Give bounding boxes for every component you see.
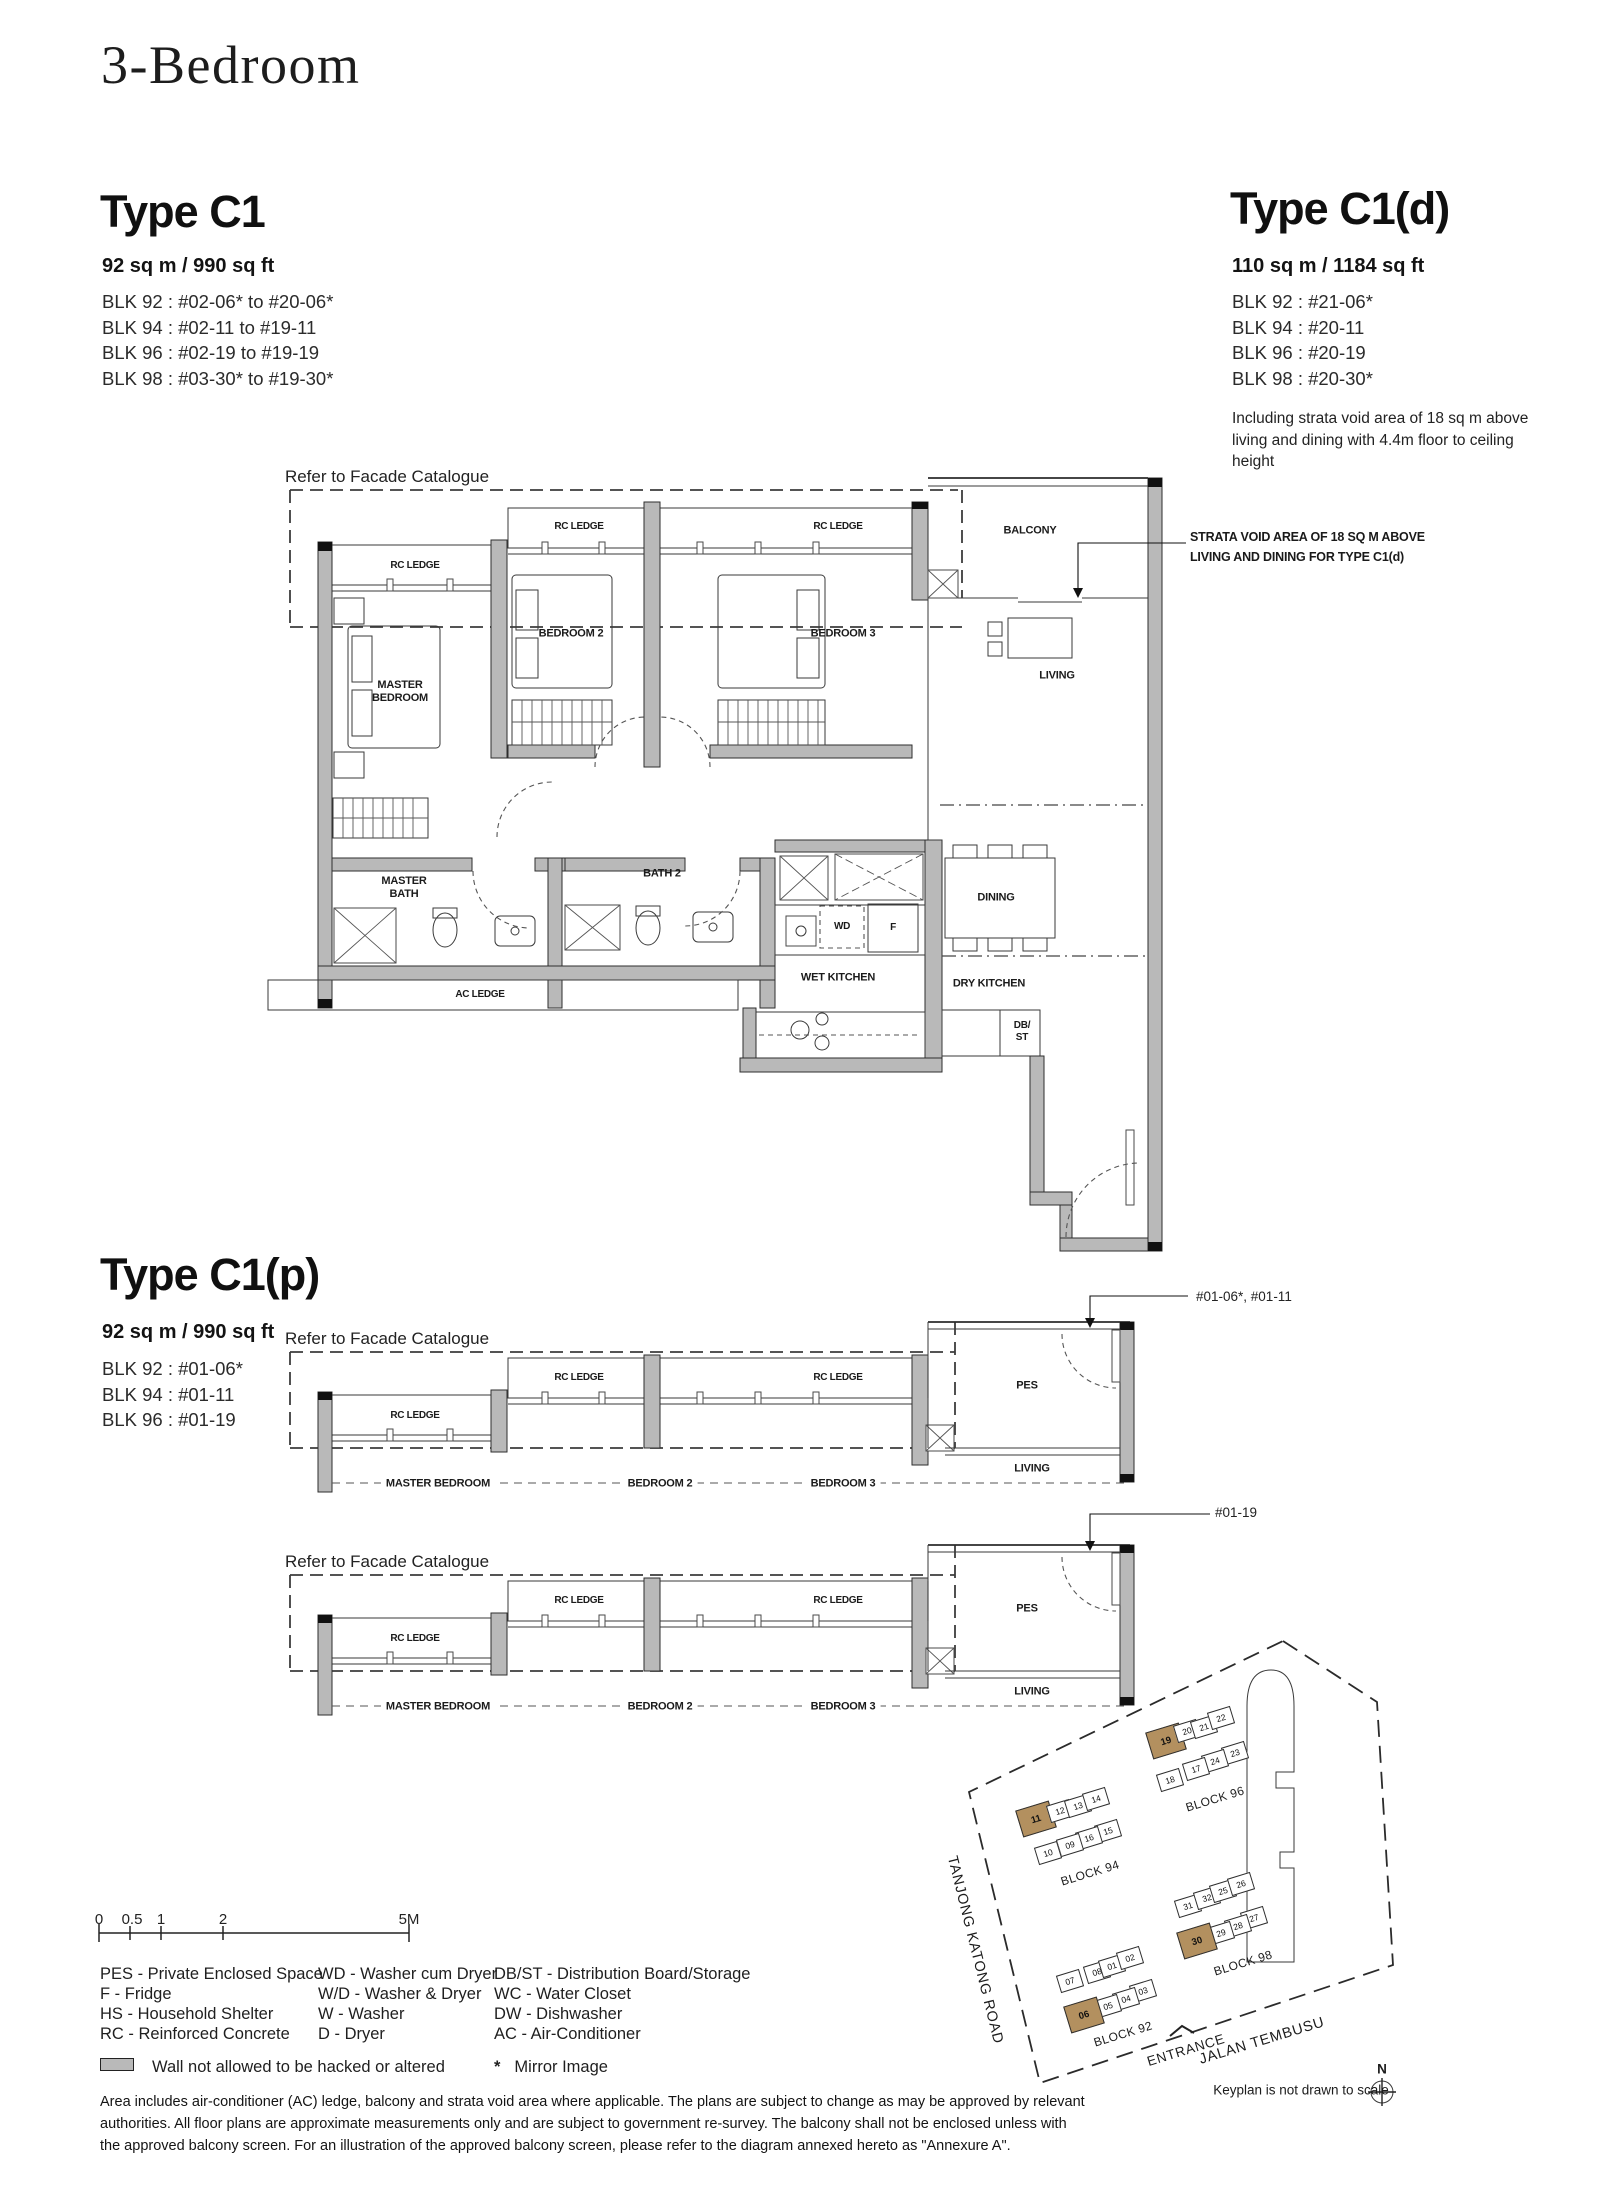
rc-ledge-label: RC LEDGE [813, 521, 862, 533]
scale-tick-label: 0 [95, 1911, 103, 1928]
scale-tick-label: 5M [399, 1911, 420, 1928]
living-label: LIVING [1014, 1462, 1049, 1475]
blk-line: BLK 96 : #02-19 to #19-19 [102, 340, 333, 366]
legend-item: W/D - Washer & Dryer [318, 1984, 497, 2004]
legend-item: DB/ST - Distribution Board/Storage [494, 1964, 750, 1984]
type-c1-area: 92 sq m / 990 sq ft [102, 256, 274, 276]
bath2-label: BATH 2 [643, 867, 681, 880]
wd-label: WD [834, 921, 850, 933]
facade-note: Refer to Facade Catalogue [285, 1329, 489, 1349]
blk-line: BLK 92 : #21-06* [1232, 289, 1373, 315]
dining-label: DINING [977, 891, 1014, 904]
blk-line: BLK 92 : #01-06* [102, 1356, 243, 1382]
window-ticks [387, 542, 819, 591]
pes-door-arc [1062, 1334, 1116, 1388]
blk-line: BLK 96 : #20-19 [1232, 340, 1373, 366]
blk-line: BLK 92 : #02-06* to #20-06* [102, 289, 333, 315]
master-bedroom-label: MASTER BEDROOM [381, 1700, 495, 1713]
plan-c1p-1 [290, 1296, 1188, 1492]
keyplan-note: Keyplan is not drawn to scale [1213, 2083, 1389, 2098]
rc-ledge-label: RC LEDGE [813, 1372, 862, 1384]
north-label: N [1377, 2062, 1387, 2077]
disclaimer-line: Area includes air-conditioner (AC) ledge… [100, 2094, 1085, 2110]
unit-annotation: #01-06*, #01-11 [1196, 1289, 1292, 1304]
wall-swatch [100, 2058, 134, 2071]
type-c1d-blocks: BLK 92 : #21-06* BLK 94 : #20-11 BLK 96 … [1232, 289, 1373, 391]
wardrobes [333, 700, 825, 838]
legend-item: DW - Dishwasher [494, 2004, 750, 2024]
bedroom3-label: BEDROOM 3 [811, 627, 876, 640]
bedroom2-label: BEDROOM 2 [623, 1477, 698, 1490]
keyplan-linework [969, 1641, 1396, 2106]
bedroom3-label: BEDROOM 3 [806, 1700, 881, 1713]
legend-item: HS - Household Shelter [100, 2004, 323, 2024]
legend-item: D - Dryer [318, 2024, 497, 2044]
pes-door-arc [1062, 1557, 1116, 1611]
living-label: LIVING [1039, 669, 1074, 682]
scale-tick-label: 0.5 [122, 1911, 143, 1928]
strata-leader [1073, 543, 1186, 598]
wall-note: Wall not allowed to be hacked or altered [152, 2058, 445, 2077]
plan-c1p-2 [290, 1514, 1210, 1715]
blk-line: BLK 94 : #01-11 [102, 1382, 243, 1408]
blk-line: BLK 94 : #02-11 to #19-11 [102, 315, 333, 341]
legend-item: WC - Water Closet [494, 1984, 750, 2004]
type-c1p-heading: Type C1(p) [100, 1252, 319, 1297]
blk-line: BLK 96 : #01-19 [102, 1407, 243, 1433]
fridge-label: F [890, 922, 896, 934]
pes-label: PES [1016, 1379, 1037, 1392]
legend-item: PES - Private Enclosed Space [100, 1964, 323, 1984]
facade-note: Refer to Facade Catalogue [285, 1552, 489, 1572]
type-c1-heading: Type C1 [100, 189, 265, 234]
rc-ledge-label: RC LEDGE [390, 1633, 439, 1645]
legend-col2: WD - Washer cum Dryer W/D - Washer & Dry… [318, 1964, 497, 2044]
dry-kitchen-label: DRY KITCHEN [953, 977, 1025, 990]
legend-item: W - Washer [318, 2004, 497, 2024]
pes-label: PES [1016, 1602, 1037, 1615]
rc-ledge-label: RC LEDGE [390, 560, 439, 572]
disclaimer-line: the approved balcony screen. For an illu… [100, 2138, 1011, 2154]
ac-ledge-label: AC LEDGE [455, 989, 504, 1001]
plan-c1 [268, 478, 1186, 1251]
rc-ledge-label: RC LEDGE [554, 1372, 603, 1384]
floorplan-sheet: 3-Bedroom Type C1 92 sq m / 990 sq ft BL… [0, 0, 1600, 2202]
scale-tick-label: 2 [219, 1911, 227, 1928]
page-title: 3-Bedroom [101, 36, 360, 95]
mirror-text: Mirror Image [514, 2058, 608, 2076]
master-bedroom-label: MASTER BEDROOM [360, 679, 440, 705]
type-c1d-strata-note: Including strata void area of 18 sq m ab… [1232, 408, 1532, 473]
unit-annotation: #01-19 [1215, 1505, 1257, 1520]
rc-ledge-label: RC LEDGE [554, 521, 603, 533]
legend-col1: PES - Private Enclosed Space F - Fridge … [100, 1964, 323, 2044]
rc-ledge-label: RC LEDGE [813, 1595, 862, 1607]
legend-item: RC - Reinforced Concrete [100, 2024, 323, 2044]
legend-item: WD - Washer cum Dryer [318, 1964, 497, 1984]
balcony-label: BALCONY [1004, 524, 1057, 537]
bedroom2-label: BEDROOM 2 [539, 627, 604, 640]
type-c1p-blocks: BLK 92 : #01-06* BLK 94 : #01-11 BLK 96 … [102, 1356, 243, 1433]
facade-note: Refer to Facade Catalogue [285, 467, 489, 487]
blk-line: BLK 98 : #03-30* to #19-30* [102, 366, 333, 392]
legend-item: AC - Air-Conditioner [494, 2024, 750, 2044]
entrance-mark [1170, 2026, 1194, 2036]
wet-kitchen-label: WET KITCHEN [801, 971, 875, 984]
dbst-label: DB/ ST [1014, 1020, 1031, 1044]
master-bath-label: MASTER BATH [374, 875, 434, 901]
blk-line: BLK 94 : #20-11 [1232, 315, 1373, 341]
strata-annotation: STRATA VOID AREA OF 18 SQ M ABOVE LIVING… [1190, 527, 1425, 567]
type-c1d-heading: Type C1(d) [1230, 186, 1449, 231]
type-c1d-area: 110 sq m / 1184 sq ft [1232, 256, 1424, 276]
scale-bar [99, 1924, 409, 1942]
legend-col3: DB/ST - Distribution Board/Storage WC - … [494, 1964, 750, 2044]
type-c1p-area: 92 sq m / 990 sq ft [102, 1322, 274, 1342]
rc-ledge-label: RC LEDGE [554, 1595, 603, 1607]
blk-line: BLK 98 : #20-30* [1232, 366, 1373, 392]
mirror-image-note: *Mirror Image [494, 2058, 608, 2077]
bedroom3-label: BEDROOM 3 [806, 1477, 881, 1490]
bedroom2-label: BEDROOM 2 [623, 1700, 698, 1713]
disclaimer-line: authorities. All floor plans are approxi… [100, 2116, 1067, 2132]
living-label: LIVING [1014, 1685, 1049, 1698]
master-bedroom-label: MASTER BEDROOM [381, 1477, 495, 1490]
legend-item: F - Fridge [100, 1984, 323, 2004]
scale-tick-label: 1 [157, 1911, 165, 1928]
rc-ledge-label: RC LEDGE [390, 1410, 439, 1422]
mirror-asterisk: * [494, 2058, 500, 2076]
type-c1-blocks: BLK 92 : #02-06* to #20-06* BLK 94 : #02… [102, 289, 333, 391]
